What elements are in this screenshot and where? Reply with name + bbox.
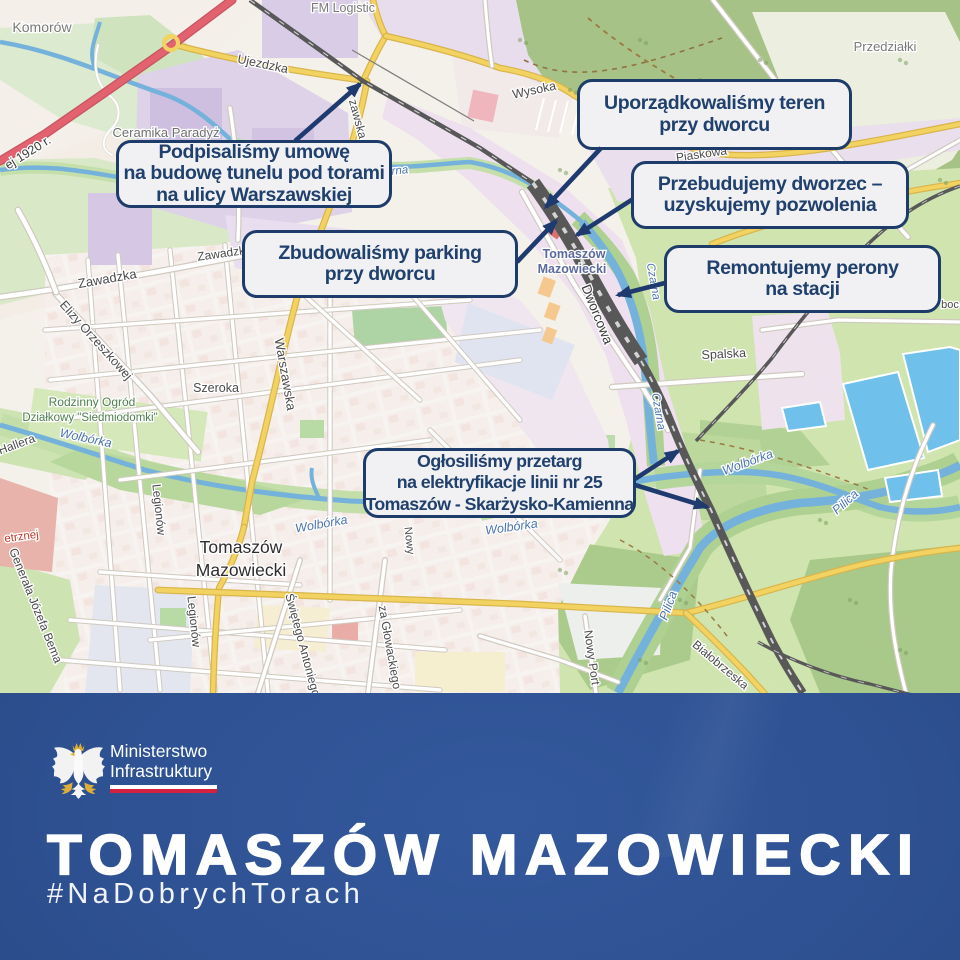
svg-text:FM Logistic: FM Logistic — [311, 1, 375, 15]
svg-text:Ceramika Paradyż: Ceramika Paradyż — [113, 125, 220, 140]
svg-text:Działkowy "Siedmiodomki": Działkowy "Siedmiodomki" — [22, 412, 157, 424]
svg-text:Komorów: Komorów — [12, 19, 72, 35]
svg-text:Mazowiecki: Mazowiecki — [196, 560, 286, 580]
svg-text:Szeroka: Szeroka — [193, 381, 239, 395]
svg-text:Spalska: Spalska — [701, 346, 746, 362]
svg-text:Mazowiecki: Mazowiecki — [538, 262, 607, 276]
svg-text:Przedziałki: Przedziałki — [854, 39, 917, 54]
svg-text:Tomaszów: Tomaszów — [200, 537, 283, 557]
svg-text:Tomaszów: Tomaszów — [543, 247, 606, 261]
svg-text:Rodzinny Ogród: Rodzinny Ogród — [49, 395, 136, 409]
svg-text:boc: boc — [941, 299, 959, 311]
